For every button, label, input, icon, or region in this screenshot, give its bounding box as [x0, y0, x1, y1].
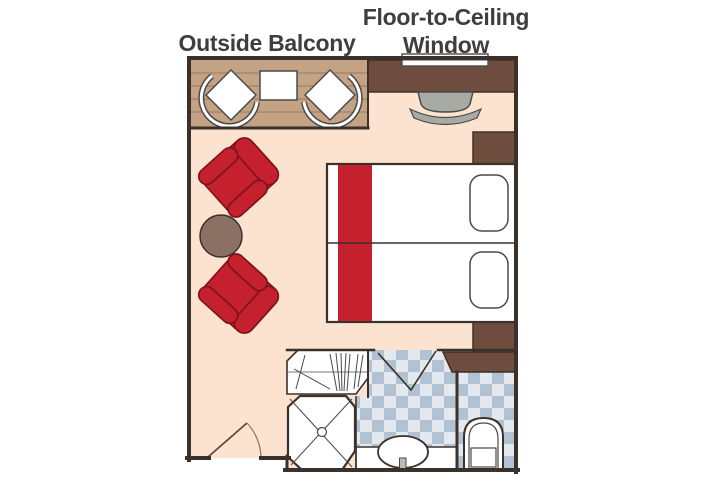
- shower-drain: [318, 428, 327, 437]
- twin-beds: [327, 164, 516, 322]
- pillow-lower: [470, 252, 508, 308]
- balcony-table: [260, 71, 297, 100]
- shower: [288, 396, 355, 470]
- label-outside-balcony: Outside Balcony: [179, 30, 356, 56]
- floor-plan: Outside Balcony Floor-to-Ceiling Window: [0, 0, 726, 484]
- toilet: [464, 418, 503, 470]
- pillow-upper: [470, 175, 508, 231]
- closet: [287, 350, 368, 394]
- cabinet-over-toilet: [443, 352, 516, 372]
- label-window-line1: Floor-to-Ceiling: [363, 4, 529, 30]
- round-side-table: [200, 215, 242, 257]
- nightstand-upper: [473, 132, 516, 164]
- stateroom-floorplan-page: Outside Balcony Floor-to-Ceiling Window: [0, 0, 726, 484]
- nightstand-lower: [473, 318, 516, 354]
